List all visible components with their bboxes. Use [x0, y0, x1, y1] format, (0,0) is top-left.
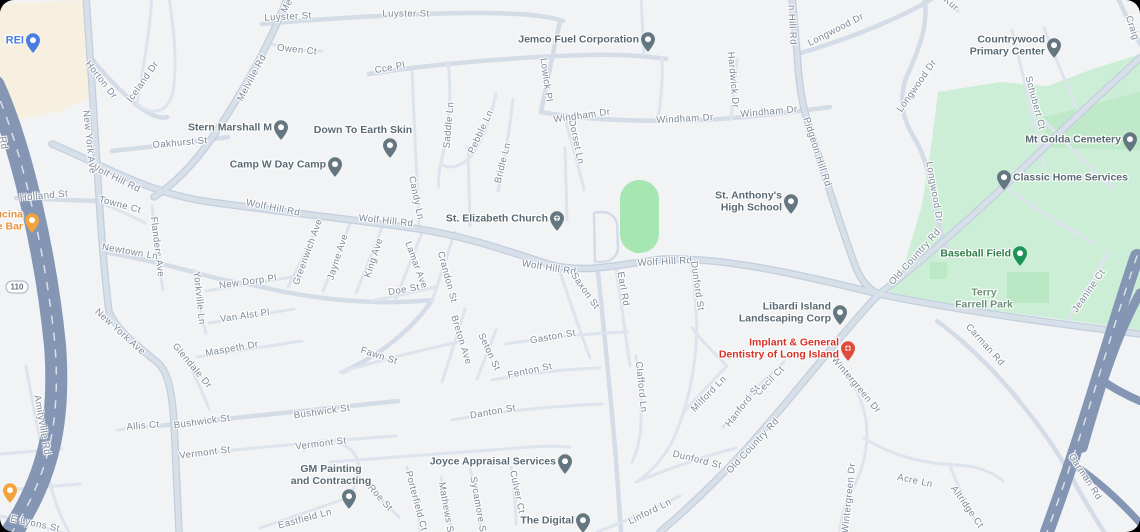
st-anthony-s-high-school-label: St. Anthony'sHigh School [715, 191, 782, 214]
cucina-wine-bar-clipped-pin-icon[interactable] [25, 213, 39, 238]
stern-marshall-m-label: Stern Marshall M [188, 122, 272, 134]
camp-w-day-camp-label: Camp W Day Camp [230, 159, 326, 171]
map-canvas[interactable]: Luyster StLuyster StMeOwen CtHorton DrIc… [0, 0, 1140, 532]
jemco-fuel-corporation-pin-icon[interactable] [641, 32, 655, 57]
ballfield-dark-area [1007, 272, 1049, 303]
down-to-earth-skin-pin-icon[interactable] [383, 138, 397, 163]
road-mid-vertical [598, 272, 621, 532]
jemco-fuel-corporation-label: Jemco Fuel Corporation [518, 34, 639, 46]
terry-farrell-park-label: TerryFarrell Park [955, 288, 1013, 311]
camp-w-day-camp-pin-icon[interactable] [328, 157, 342, 182]
classic-home-services-label: Classic Home Services [1013, 172, 1128, 184]
road-label-luyster-st: Luyster St [382, 9, 429, 20]
countrywood-primary-center-pin-icon[interactable] [1047, 38, 1061, 63]
road-cce-pl [369, 55, 666, 74]
rei-label: REI [6, 35, 24, 47]
route-shield-110: 110 [6, 281, 29, 294]
road-jemco-south [658, 58, 662, 118]
stern-marshall-m-pin-icon[interactable] [274, 120, 288, 145]
svg-text:✝: ✝ [554, 214, 560, 223]
screenshot-frame: Luyster StLuyster StMeOwen CtHorton DrIc… [0, 0, 1140, 532]
joyce-appraisal-services-label: Joyce Appraisal Services [430, 456, 556, 468]
implant-general-dentistry-of-long-island-label: Implant & GeneralDentistry of Long Islan… [719, 338, 839, 361]
sports-field-oval [620, 180, 659, 253]
svg-text:✚: ✚ [845, 344, 851, 353]
the-digital-label: The Digital [520, 515, 574, 527]
road-acre-ln [864, 438, 1003, 481]
restaurant-pin-icon[interactable] [3, 483, 17, 508]
libardi-island-landscaping-corp-label: Libardi IslandLandscaping Corp [739, 302, 831, 325]
road-longwood-dr-w [797, 0, 934, 54]
mt-golda-cemetery-pin-icon[interactable] [1123, 132, 1137, 157]
baseball-field-label: Baseball Field [940, 248, 1011, 260]
the-digital-pin-icon[interactable] [576, 513, 590, 532]
road-label-n-hill-rd: n Hill Rd [785, 5, 798, 45]
st-anthony-s-high-school-pin-icon[interactable] [784, 194, 798, 219]
st-elizabeth-church-pin-icon[interactable]: ✝ [550, 211, 564, 236]
baseball-field-pin-icon[interactable] [1013, 246, 1027, 271]
mt-golda-cemetery-label: Mt Golda Cemetery [1025, 134, 1121, 146]
gm-painting-and-contracting-pin-icon[interactable] [342, 489, 356, 514]
ballfield-small-area [930, 262, 947, 279]
rei-pin-icon[interactable] [26, 33, 40, 58]
road-iceland-dr-e [137, 0, 175, 111]
gm-painting-and-contracting-label: GM Paintingand Contracting [291, 464, 372, 487]
libardi-island-landscaping-corp-pin-icon[interactable] [833, 305, 847, 330]
cucina-wine-bar-clipped-label: ucinae Bar [0, 210, 23, 233]
implant-general-dentistry-of-long-island-pin-icon[interactable]: ✚ [841, 341, 855, 366]
road-church-east [565, 148, 567, 220]
countrywood-primary-center-label: CountrywoodPrimary Center [970, 35, 1045, 58]
classic-home-services-pin-icon[interactable] [997, 170, 1011, 195]
road-fawn-st [340, 341, 462, 372]
church-lot [594, 212, 618, 262]
st-elizabeth-church-label: St. Elizabeth Church [446, 213, 548, 225]
joyce-appraisal-services-pin-icon[interactable] [558, 454, 572, 479]
down-to-earth-skin-label: Down To Earth Skin [314, 125, 412, 137]
